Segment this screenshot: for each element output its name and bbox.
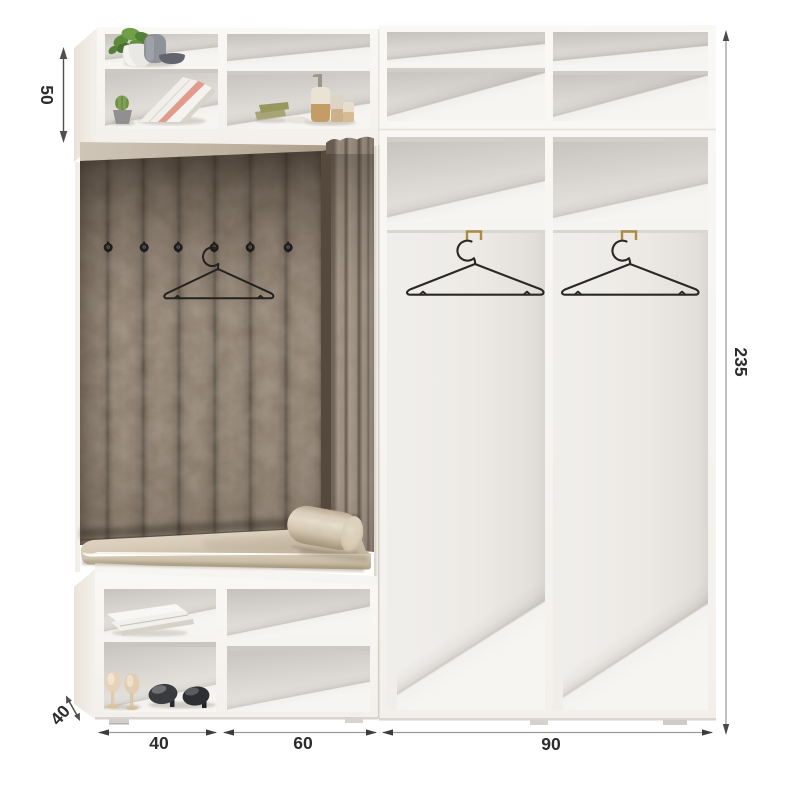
svg-text:60: 60 <box>293 733 313 753</box>
svg-text:50: 50 <box>37 85 57 105</box>
svg-text:90: 90 <box>541 734 561 754</box>
svg-text:40: 40 <box>149 733 169 753</box>
svg-text:235: 235 <box>731 347 751 376</box>
